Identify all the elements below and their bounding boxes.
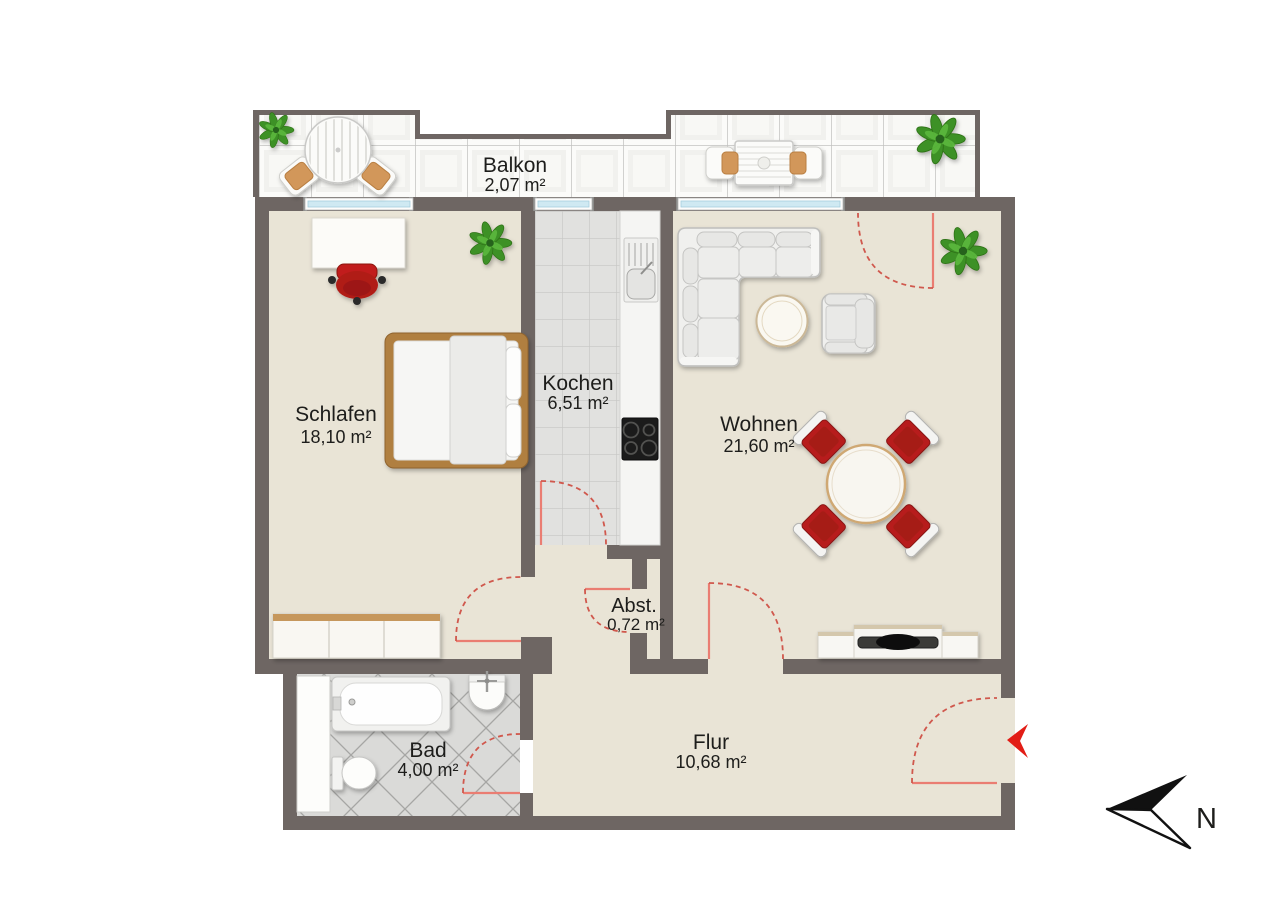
floor-plan-page: N Balkon 2,07 m² Schlafen 18,10 m² Koche… bbox=[0, 0, 1280, 905]
balcony-dining-table bbox=[706, 141, 822, 185]
window bbox=[303, 197, 413, 211]
room-label-abstellraum: Abst. bbox=[611, 595, 657, 617]
coffee-table bbox=[757, 296, 808, 347]
room-area-bad: 4,00 m² bbox=[397, 760, 458, 780]
toilet bbox=[332, 757, 376, 790]
room-area-schlafen: 18,10 m² bbox=[300, 427, 371, 447]
window bbox=[676, 197, 845, 211]
windows bbox=[303, 197, 845, 211]
dining-table bbox=[827, 445, 905, 523]
room-area-abstellraum: 0,72 m² bbox=[607, 615, 665, 634]
room-label-wohnen: Wohnen bbox=[720, 413, 798, 436]
room-area-wohnen: 21,60 m² bbox=[723, 436, 794, 456]
room-area-flur: 10,68 m² bbox=[675, 752, 746, 772]
room-area-kochen: 6,51 m² bbox=[547, 393, 608, 413]
room-area-balkon: 2,07 m² bbox=[484, 175, 545, 195]
north-arrow-icon: N bbox=[1107, 775, 1217, 848]
room-label-kochen: Kochen bbox=[542, 372, 613, 395]
wardrobe bbox=[273, 614, 440, 658]
window bbox=[533, 197, 594, 211]
compass-label: N bbox=[1196, 803, 1217, 835]
room-floor-hallway bbox=[533, 659, 1001, 816]
desk bbox=[312, 218, 405, 268]
kitchen-furniture bbox=[620, 211, 660, 545]
stove bbox=[622, 418, 658, 460]
armchair bbox=[822, 294, 875, 353]
room-label-flur: Flur bbox=[693, 731, 729, 754]
bathtub bbox=[332, 677, 450, 731]
balcony-round-table bbox=[305, 117, 371, 183]
room-label-balkon: Balkon bbox=[483, 154, 547, 177]
duct-shaft bbox=[297, 676, 330, 812]
kitchen-sink bbox=[624, 238, 658, 302]
room-label-schlafen: Schlafen bbox=[295, 403, 377, 426]
bathroom-sink bbox=[469, 671, 505, 710]
bedroom-door-opening bbox=[521, 577, 535, 637]
bed bbox=[385, 333, 528, 468]
floor-plan: N Balkon 2,07 m² Schlafen 18,10 m² Koche… bbox=[0, 0, 1280, 905]
room-label-bad: Bad bbox=[409, 739, 446, 762]
